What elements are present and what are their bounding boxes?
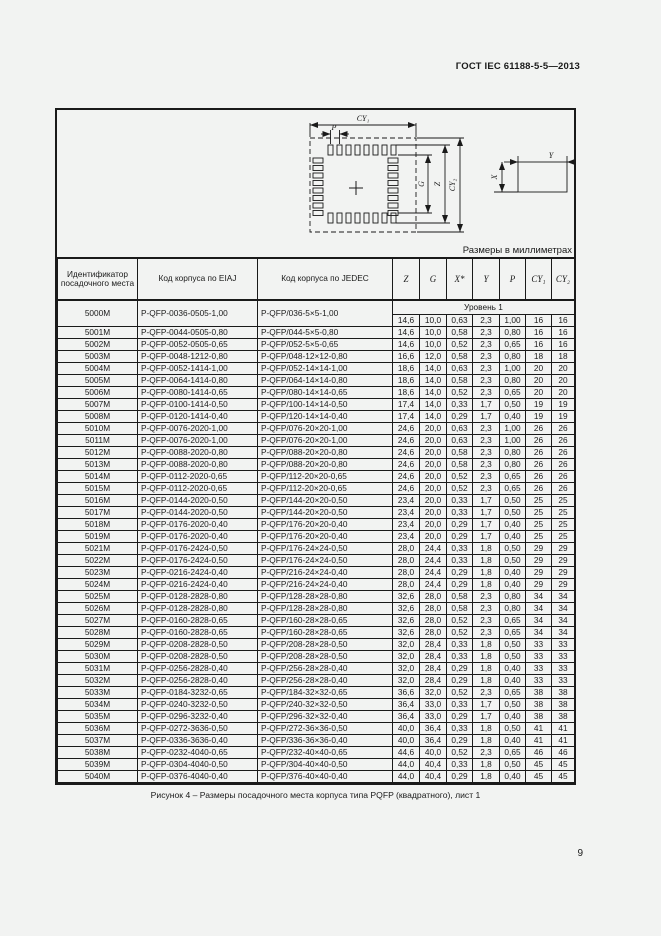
cell-value: 1,7 xyxy=(473,399,500,411)
cell-value: 36,4 xyxy=(420,723,447,735)
cell-value: 34 xyxy=(552,615,575,627)
table-row: 5011MP-QFP-0076-2020-1,00P-QFP/076-20×20… xyxy=(58,435,575,447)
cell-code: P-QFP-0160-2828-0,65 xyxy=(138,615,258,627)
cell-value: 24,4 xyxy=(420,579,447,591)
table-row: 5026MP-QFP-0128-2828-0,80P-QFP/128-28×28… xyxy=(58,603,575,615)
cell-value: 28,4 xyxy=(420,639,447,651)
cell-code: P-QFP/048-12×12-0,80 xyxy=(258,351,393,363)
cell-value: 38 xyxy=(526,711,552,723)
cell-value: 2,3 xyxy=(473,459,500,471)
cell-identifier: 5037M xyxy=(58,735,138,747)
cell-value: 0,58 xyxy=(447,327,473,339)
cell-value: 14,6 xyxy=(393,315,420,327)
table-row: 5010MP-QFP-0076-2020-1,00P-QFP/076-20×20… xyxy=(58,423,575,435)
cell-code: P-QFP/112-20×20-0,65 xyxy=(258,483,393,495)
cell-identifier: 5005M xyxy=(58,375,138,387)
cell-value: 1,7 xyxy=(473,507,500,519)
cell-value: 38 xyxy=(526,687,552,699)
table-row: 5023MP-QFP-0216-2424-0,40P-QFP/216-24×24… xyxy=(58,567,575,579)
cell-code: P-QFP-0076-2020-1,00 xyxy=(138,423,258,435)
cell-code: P-QFP-0256-2828-0,40 xyxy=(138,663,258,675)
cell-value: 16,6 xyxy=(393,351,420,363)
cell-code: P-QFP/076-20×20-1,00 xyxy=(258,423,393,435)
cell-value: 2,3 xyxy=(473,339,500,351)
cell-value: 20 xyxy=(526,375,552,387)
cell-identifier: 5007M xyxy=(58,399,138,411)
cell-value: 2,3 xyxy=(473,447,500,459)
cell-code: P-QFP/160-28×28-0,65 xyxy=(258,627,393,639)
cell-value: 24,6 xyxy=(393,447,420,459)
cell-value: 0,29 xyxy=(447,519,473,531)
table-row: 5027MP-QFP-0160-2828-0,65P-QFP/160-28×28… xyxy=(58,615,575,627)
cell-value: 1,7 xyxy=(473,411,500,423)
cell-value: 26 xyxy=(552,483,575,495)
p-label: P xyxy=(331,123,337,132)
cell-identifier: 5034M xyxy=(58,699,138,711)
table-row: 5024MP-QFP-0216-2424-0,40P-QFP/216-24×24… xyxy=(58,579,575,591)
cell-code: P-QFP/080-14×14-0,65 xyxy=(258,387,393,399)
cell-value: 1,00 xyxy=(500,435,526,447)
cell-value: 14,0 xyxy=(420,363,447,375)
table-row: 5017MP-QFP-0144-2020-0,50P-QFP/144-20×20… xyxy=(58,507,575,519)
cell-code: P-QFP/256-28×28-0,40 xyxy=(258,675,393,687)
cell-value: 0,65 xyxy=(500,483,526,495)
cell-identifier: 5033M xyxy=(58,687,138,699)
cell-value: 40,0 xyxy=(393,723,420,735)
cell-code: P-QFP/304-40×40-0,50 xyxy=(258,759,393,771)
cell-code: P-QFP/100-14×14-0,50 xyxy=(258,399,393,411)
cell-value: 1,7 xyxy=(473,495,500,507)
table-header-row: Идентификатор посадочного места Код корп… xyxy=(58,258,575,300)
table-row: 5035MP-QFP-0296-3232-0,40P-QFP/296-32×32… xyxy=(58,711,575,723)
cell-code: P-QFP/128-28×28-0,80 xyxy=(258,591,393,603)
cell-identifier: 5026M xyxy=(58,603,138,615)
cell-value: 2,3 xyxy=(473,351,500,363)
cell-value: 0,40 xyxy=(500,411,526,423)
cell-value: 0,29 xyxy=(447,735,473,747)
cell-code: P-QFP-0176-2424-0,50 xyxy=(138,555,258,567)
cell-value: 45 xyxy=(526,759,552,771)
table-row: 5031MP-QFP-0256-2828-0,40P-QFP/256-28×28… xyxy=(58,663,575,675)
cell-value: 0,50 xyxy=(500,555,526,567)
cell-value: 32,0 xyxy=(393,639,420,651)
table-row: 5019MP-QFP-0176-2020-0,40P-QFP/176-20×20… xyxy=(58,531,575,543)
cell-code: P-QFP-0144-2020-0,50 xyxy=(138,495,258,507)
cell-value: 28,0 xyxy=(420,627,447,639)
table-row: 5033MP-QFP-0184-3232-0,65P-QFP/184-32×32… xyxy=(58,687,575,699)
cell-value: 33 xyxy=(552,651,575,663)
cell-code: P-QFP-0128-2828-0,80 xyxy=(138,591,258,603)
cell-value: 0,33 xyxy=(447,723,473,735)
pad-row-bottom xyxy=(328,213,396,223)
cell-code: P-QFP/044-5×5-0,80 xyxy=(258,327,393,339)
cell-code: P-QFP/120-14×14-0,40 xyxy=(258,411,393,423)
cell-value: 0,29 xyxy=(447,711,473,723)
cell-code: P-QFP-0080-1414-0,65 xyxy=(138,387,258,399)
cell-value: 34 xyxy=(552,603,575,615)
cell-value: 0,50 xyxy=(500,651,526,663)
cell-value: 20,0 xyxy=(420,423,447,435)
cell-value: 0,52 xyxy=(447,471,473,483)
cell-value: 0,65 xyxy=(500,627,526,639)
table-row: 5037MP-QFP-0336-3636-0,40P-QFP/336-36×36… xyxy=(58,735,575,747)
cell-value: 20,0 xyxy=(420,447,447,459)
figure-caption: Рисунок 4 – Размеры посадочного места ко… xyxy=(55,790,576,800)
standard-number-header: ГОСТ IEC 61188-5-5—2013 xyxy=(0,61,580,72)
cell-value: 32,0 xyxy=(393,675,420,687)
cell-code: P-QFP/088-20×20-0,80 xyxy=(258,459,393,471)
table-row: 5038MP-QFP-0232-4040-0,65P-QFP/232-40×40… xyxy=(58,747,575,759)
cell-value: 23,4 xyxy=(393,519,420,531)
cell-value: 33 xyxy=(552,675,575,687)
cell-value: 0,65 xyxy=(500,471,526,483)
cell-value: 33,0 xyxy=(420,699,447,711)
cell-code: P-QFP-0184-3232-0,65 xyxy=(138,687,258,699)
cell-value: 0,33 xyxy=(447,495,473,507)
cell-value: 2,3 xyxy=(473,591,500,603)
cell-value: 16 xyxy=(526,339,552,351)
col-header-z: Z xyxy=(393,258,420,300)
content-column: CY₁ P xyxy=(55,108,576,800)
cell-code: P-QFP-0088-2020-0,80 xyxy=(138,459,258,471)
cell-value: 25 xyxy=(552,507,575,519)
cell-code: P-QFP-0336-3636-0,40 xyxy=(138,735,258,747)
cell-value: 20,0 xyxy=(420,459,447,471)
cell-identifier: 5004M xyxy=(58,363,138,375)
cell-value: 0,80 xyxy=(500,351,526,363)
cell-value: 2,3 xyxy=(473,747,500,759)
cell-code: P-QFP/256-28×28-0,40 xyxy=(258,663,393,675)
table-row: 5006MP-QFP-0080-1414-0,65P-QFP/080-14×14… xyxy=(58,387,575,399)
cell-value: 28,4 xyxy=(420,651,447,663)
cell-value: 0,52 xyxy=(447,339,473,351)
cell-code: P-QFP-0088-2020-0,80 xyxy=(138,447,258,459)
col-header-identifier: Идентификатор посадочного места xyxy=(58,258,138,300)
cell-value: 0,29 xyxy=(447,675,473,687)
cell-value: 45 xyxy=(552,771,575,783)
cell-value: 24,6 xyxy=(393,459,420,471)
table-row: 5034MP-QFP-0240-3232-0,50P-QFP/240-32×32… xyxy=(58,699,575,711)
cell-value: 0,58 xyxy=(447,603,473,615)
cell-value: 28,0 xyxy=(420,615,447,627)
cell-value: 24,6 xyxy=(393,423,420,435)
cell-value: 38 xyxy=(552,687,575,699)
cell-value: 1,8 xyxy=(473,639,500,651)
cell-value: 24,4 xyxy=(420,567,447,579)
cell-code: P-QFP/064-14×14-0,80 xyxy=(258,375,393,387)
col-header-p: P xyxy=(500,258,526,300)
cell-value: 0,52 xyxy=(447,627,473,639)
cell-value: 20,0 xyxy=(420,471,447,483)
cell-value: 0,33 xyxy=(447,399,473,411)
cell-code: P-QFP-0036-0505-1,00 xyxy=(138,300,258,327)
cell-value: 0,58 xyxy=(447,375,473,387)
cell-value: 44,0 xyxy=(393,759,420,771)
cell-value: 36,4 xyxy=(420,735,447,747)
cell-value: 0,58 xyxy=(447,591,473,603)
cell-value: 14,0 xyxy=(420,411,447,423)
cell-value: 1,00 xyxy=(500,363,526,375)
cell-value: 29 xyxy=(552,567,575,579)
cell-value: 33,0 xyxy=(420,711,447,723)
cell-value: 40,0 xyxy=(393,735,420,747)
cell-value: 14,6 xyxy=(393,339,420,351)
footprint-diagram: CY₁ P xyxy=(304,110,574,250)
cell-value: 0,80 xyxy=(500,375,526,387)
cell-code: P-QFP/076-20×20-1,00 xyxy=(258,435,393,447)
cell-code: P-QFP/296-32×32-0,40 xyxy=(258,711,393,723)
cell-identifier: 5016M xyxy=(58,495,138,507)
cell-value: 16 xyxy=(526,315,552,327)
cell-value: 20 xyxy=(526,387,552,399)
cell-value: 19 xyxy=(526,399,552,411)
col-header-g: G xyxy=(420,258,447,300)
cell-value: 16 xyxy=(552,327,575,339)
cell-code: P-QFP/088-20×20-0,80 xyxy=(258,447,393,459)
cell-value: 2,3 xyxy=(473,423,500,435)
cell-value: 23,4 xyxy=(393,507,420,519)
cell-code: P-QFP/036-5×5-1,00 xyxy=(258,300,393,327)
cell-value: 2,3 xyxy=(473,483,500,495)
cell-value: 26 xyxy=(552,447,575,459)
cell-value: 10,0 xyxy=(420,315,447,327)
units-note: Размеры в миллиметрах xyxy=(463,245,572,256)
cell-code: P-QFP/160-28×28-0,65 xyxy=(258,615,393,627)
cell-code: P-QFP-0052-1414-1,00 xyxy=(138,363,258,375)
cell-value: 25 xyxy=(552,495,575,507)
cell-value: 2,3 xyxy=(473,375,500,387)
cell-identifier: 5029M xyxy=(58,639,138,651)
cell-value: 2,3 xyxy=(473,615,500,627)
pad-column-right xyxy=(388,158,398,216)
cell-value: 19 xyxy=(552,411,575,423)
cell-value: 45 xyxy=(526,771,552,783)
cell-value: 33 xyxy=(526,675,552,687)
cell-value: 29 xyxy=(552,543,575,555)
cell-value: 18 xyxy=(526,351,552,363)
cell-value: 24,4 xyxy=(420,543,447,555)
cell-value: 0,50 xyxy=(500,723,526,735)
cell-value: 29 xyxy=(526,555,552,567)
cell-value: 0,40 xyxy=(500,711,526,723)
cell-value: 0,33 xyxy=(447,555,473,567)
cell-value: 0,63 xyxy=(447,363,473,375)
cell-identifier: 5018M xyxy=(58,519,138,531)
cell-identifier: 5013M xyxy=(58,459,138,471)
cell-value: 36,4 xyxy=(393,711,420,723)
cell-value: 10,0 xyxy=(420,339,447,351)
cell-value: 0,63 xyxy=(447,435,473,447)
cell-value: 41 xyxy=(526,723,552,735)
dimensions-table: Идентификатор посадочного места Код корп… xyxy=(57,257,575,783)
cell-value: 0,50 xyxy=(500,399,526,411)
cell-value: 0,52 xyxy=(447,387,473,399)
cell-identifier: 5002M xyxy=(58,339,138,351)
cell-value: 41 xyxy=(552,723,575,735)
cell-value: 41 xyxy=(552,735,575,747)
cell-value: 1,8 xyxy=(473,567,500,579)
cy2-label: CY₂ xyxy=(448,179,457,192)
cell-value: 0,40 xyxy=(500,735,526,747)
cell-identifier: 5017M xyxy=(58,507,138,519)
cell-value: 1,7 xyxy=(473,531,500,543)
cell-value: 1,7 xyxy=(473,711,500,723)
cell-code: P-QFP-0208-2828-0,50 xyxy=(138,639,258,651)
cell-code: P-QFP-0304-4040-0,50 xyxy=(138,759,258,771)
table-row: 5025MP-QFP-0128-2828-0,80P-QFP/128-28×28… xyxy=(58,591,575,603)
cell-identifier: 5025M xyxy=(58,591,138,603)
cell-value: 26 xyxy=(526,423,552,435)
table-row: 5021MP-QFP-0176-2424-0,50P-QFP/176-24×24… xyxy=(58,543,575,555)
cell-identifier: 5019M xyxy=(58,531,138,543)
cell-value: 14,6 xyxy=(393,327,420,339)
cell-code: P-QFP-0216-2424-0,40 xyxy=(138,579,258,591)
cell-value: 2,3 xyxy=(473,471,500,483)
cell-value: 25 xyxy=(526,519,552,531)
cell-value: 28,0 xyxy=(420,603,447,615)
col-header-eiaj: Код корпуса по EIAJ xyxy=(138,258,258,300)
table-row: 5018MP-QFP-0176-2020-0,40P-QFP/176-20×20… xyxy=(58,519,575,531)
cell-value: 0,33 xyxy=(447,759,473,771)
cell-value: 26 xyxy=(526,447,552,459)
cell-value: 29 xyxy=(552,555,575,567)
cell-value: 17,4 xyxy=(393,411,420,423)
cell-value: 25 xyxy=(552,531,575,543)
cell-value: 18,6 xyxy=(393,375,420,387)
cell-value: 0,50 xyxy=(500,699,526,711)
cell-identifier: 5000M xyxy=(58,300,138,327)
cell-code: P-QFP/144-20×20-0,50 xyxy=(258,495,393,507)
cell-value: 25 xyxy=(552,519,575,531)
cell-value: 34 xyxy=(526,591,552,603)
cell-value: 26 xyxy=(526,459,552,471)
cell-value: 24,4 xyxy=(420,555,447,567)
cell-value: 26 xyxy=(552,423,575,435)
cell-code: P-QFP/232-40×40-0,65 xyxy=(258,747,393,759)
cell-code: P-QFP-0176-2020-0,40 xyxy=(138,531,258,543)
cell-identifier: 5040M xyxy=(58,771,138,783)
x-label: X xyxy=(490,173,499,180)
cell-value: 2,3 xyxy=(473,603,500,615)
cell-value: 1,8 xyxy=(473,723,500,735)
cell-value: 20 xyxy=(552,387,575,399)
cell-value: 40,0 xyxy=(420,747,447,759)
cell-value: 16 xyxy=(552,339,575,351)
cell-code: P-QFP-0176-2020-0,40 xyxy=(138,519,258,531)
cell-value: 18 xyxy=(552,351,575,363)
cell-code: P-QFP-0120-1414-0,40 xyxy=(138,411,258,423)
cell-value: 1,00 xyxy=(500,423,526,435)
y-label: Y xyxy=(549,151,555,160)
cell-identifier: 5036M xyxy=(58,723,138,735)
cell-value: 14,0 xyxy=(420,387,447,399)
cell-value: 16 xyxy=(526,327,552,339)
cell-identifier: 5012M xyxy=(58,447,138,459)
pad-detail-outline xyxy=(518,162,567,192)
document-page: { "page": { "header": "ГОСТ IEC 61188-5-… xyxy=(0,0,661,936)
table-row: 5013MP-QFP-0088-2020-0,80P-QFP/088-20×20… xyxy=(58,459,575,471)
cell-value: 26 xyxy=(526,471,552,483)
cell-value: 28,4 xyxy=(420,663,447,675)
cell-value: 0,50 xyxy=(500,639,526,651)
cell-value: 36,4 xyxy=(393,699,420,711)
cell-value: 16 xyxy=(552,315,575,327)
cell-value: 1,8 xyxy=(473,579,500,591)
cell-value: 44,0 xyxy=(393,771,420,783)
cell-value: 18,6 xyxy=(393,363,420,375)
cell-value: 25 xyxy=(526,531,552,543)
cell-value: 0,58 xyxy=(447,459,473,471)
cell-code: P-QFP-0064-1414-0,80 xyxy=(138,375,258,387)
cell-code: P-QFP-0176-2424-0,50 xyxy=(138,543,258,555)
cell-value: 2,3 xyxy=(473,315,500,327)
cell-value: 28,0 xyxy=(420,591,447,603)
col-header-cy2: CY₂ xyxy=(552,258,575,300)
cell-value: 33 xyxy=(526,663,552,675)
cell-identifier: 5006M xyxy=(58,387,138,399)
cell-value: 0,29 xyxy=(447,771,473,783)
col-header-y: Y xyxy=(473,258,500,300)
cell-value: 24,6 xyxy=(393,471,420,483)
cell-identifier: 5035M xyxy=(58,711,138,723)
col-header-cy1: CY₁ xyxy=(526,258,552,300)
table-row: 5004MP-QFP-0052-1414-1,00P-QFP/052-14×14… xyxy=(58,363,575,375)
cell-value: 26 xyxy=(526,483,552,495)
cell-value: 28,0 xyxy=(393,567,420,579)
cell-value: 0,33 xyxy=(447,699,473,711)
cell-identifier: 5014M xyxy=(58,471,138,483)
cell-identifier: 5039M xyxy=(58,759,138,771)
cell-code: P-QFP/376-40×40-0,40 xyxy=(258,771,393,783)
cell-value: 33 xyxy=(526,651,552,663)
cell-value: 32,0 xyxy=(393,663,420,675)
cell-code: P-QFP/176-24×24-0,50 xyxy=(258,543,393,555)
cell-code: P-QFP/272-36×36-0,50 xyxy=(258,723,393,735)
center-cross xyxy=(349,181,363,195)
cell-value: 40,4 xyxy=(420,771,447,783)
page-number: 9 xyxy=(0,848,583,859)
cell-value: 34 xyxy=(552,627,575,639)
cell-value: 26 xyxy=(552,459,575,471)
cell-value: 0,80 xyxy=(500,603,526,615)
cell-value: 0,50 xyxy=(500,507,526,519)
cell-value: 0,63 xyxy=(447,423,473,435)
cell-value: 0,50 xyxy=(500,543,526,555)
cell-value: 0,29 xyxy=(447,663,473,675)
cell-value: 20 xyxy=(552,375,575,387)
table-row: 5002MP-QFP-0052-0505-0,65P-QFP/052-5×5-0… xyxy=(58,339,575,351)
cell-value: 14,0 xyxy=(420,375,447,387)
cell-value: 2,3 xyxy=(473,435,500,447)
cell-value: 32,0 xyxy=(420,687,447,699)
cell-code: P-QFP/216-24×24-0,40 xyxy=(258,567,393,579)
cell-value: 0,65 xyxy=(500,687,526,699)
table-row: 5039MP-QFP-0304-4040-0,50P-QFP/304-40×40… xyxy=(58,759,575,771)
table-row: 5022MP-QFP-0176-2424-0,50P-QFP/176-24×24… xyxy=(58,555,575,567)
cell-value: 1,8 xyxy=(473,543,500,555)
cell-value: 1,8 xyxy=(473,675,500,687)
cell-value: 38 xyxy=(526,699,552,711)
table-row: 5016MP-QFP-0144-2020-0,50P-QFP/144-20×20… xyxy=(58,495,575,507)
cell-value: 2,3 xyxy=(473,627,500,639)
cell-value: 32,0 xyxy=(393,651,420,663)
cell-value: 20,0 xyxy=(420,531,447,543)
col-header-jedec: Код корпуса по JEDEC xyxy=(258,258,393,300)
cell-value: 0,58 xyxy=(447,447,473,459)
cell-value: 32,6 xyxy=(393,615,420,627)
cell-value: 1,8 xyxy=(473,651,500,663)
cell-code: P-QFP-0240-3232-0,50 xyxy=(138,699,258,711)
